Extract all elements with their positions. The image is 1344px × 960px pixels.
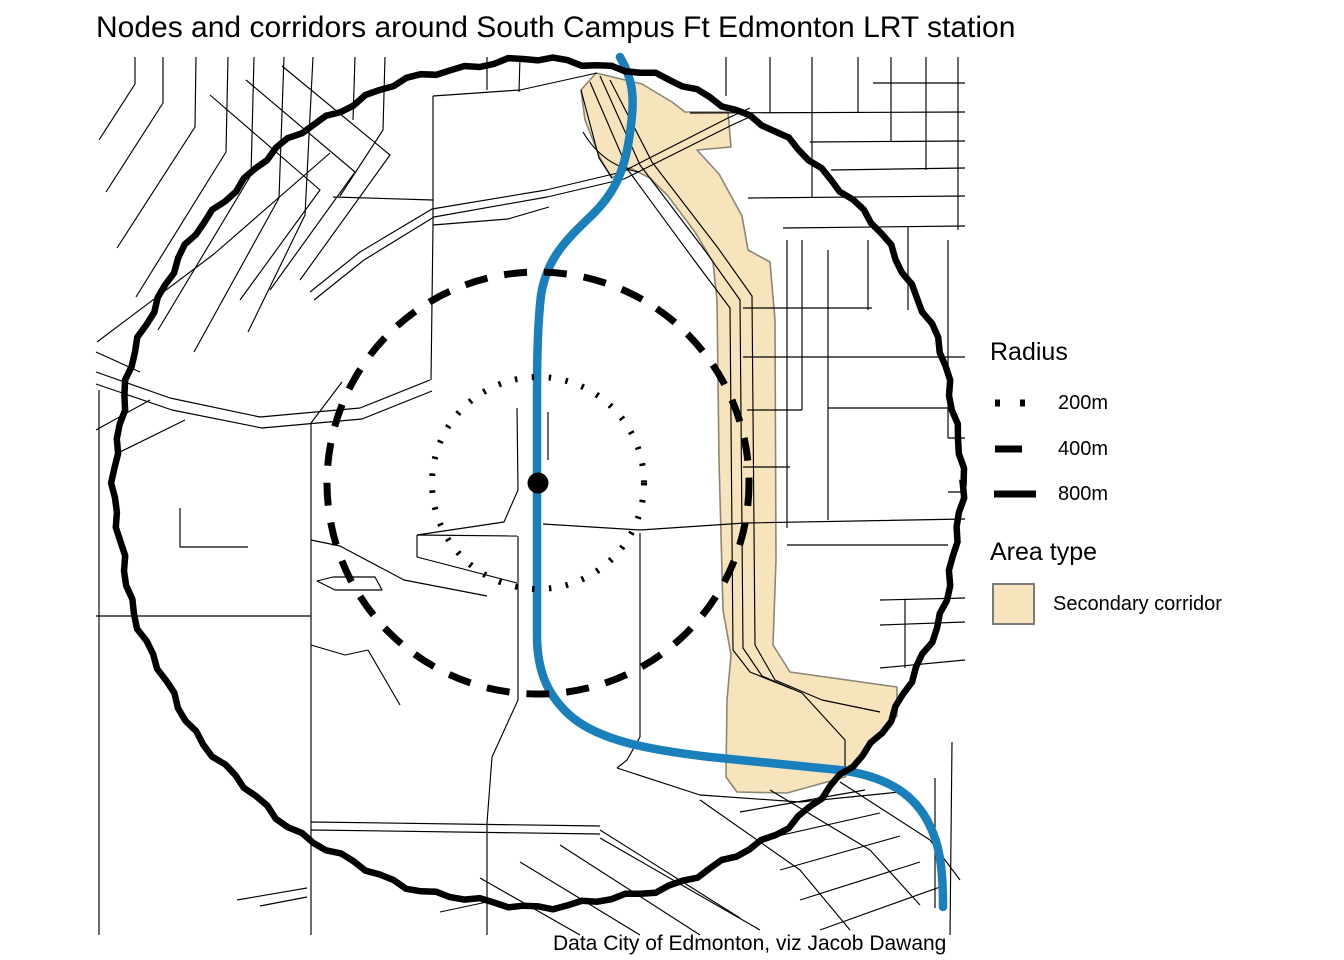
street-segment [440, 902, 487, 912]
legend-item-label: 400m [1058, 438, 1108, 461]
figure: Nodes and corridors around South Campus … [0, 0, 1344, 960]
legend-item-400m: 400m [992, 436, 1108, 462]
street-segment [340, 57, 385, 196]
legend-item-label: Secondary corridor [1053, 593, 1222, 616]
street-segment [248, 57, 313, 332]
street-segment [748, 196, 965, 198]
street-segment [880, 622, 965, 625]
legend-item-label: 200m [1058, 392, 1108, 415]
street-segment [417, 408, 518, 535]
street-segment [600, 830, 740, 918]
street-segment [260, 897, 307, 906]
street-segment [417, 535, 517, 583]
street-segment [831, 168, 965, 170]
street-segment [180, 508, 248, 547]
data-credit-caption: Data City of Edmonton, viz Jacob Dawang [553, 932, 946, 956]
street-segment [120, 420, 185, 452]
legend-item-200m: 200m [992, 390, 1108, 416]
legend-item-secondary-corridor: Secondary corridor [992, 582, 1222, 626]
dashed-line-icon [992, 443, 1040, 455]
street-segment [433, 207, 549, 225]
street-segment [96, 372, 430, 417]
legend-area-type-title: Area type [990, 538, 1097, 567]
corridor-swatch-icon [992, 583, 1035, 625]
street-segment [333, 197, 433, 200]
street-segment [96, 384, 432, 428]
street-segment [770, 790, 920, 905]
lrt-station-dot [528, 473, 549, 494]
legend-item-800m: 800m [992, 481, 1108, 507]
street-segment [99, 57, 135, 140]
street-segment [136, 57, 228, 297]
street-segment [311, 830, 600, 834]
street-segment [97, 153, 330, 342]
street-segment [880, 660, 965, 668]
street-segment [820, 887, 940, 930]
solid-line-icon [992, 488, 1040, 500]
street-segment [800, 862, 920, 900]
street-segment [417, 535, 517, 536]
street-segment [311, 822, 600, 826]
legend-radius-title: Radius [990, 338, 1068, 367]
street-segment [950, 742, 952, 935]
street-segment [311, 645, 368, 655]
secondary-corridor-area [581, 73, 897, 793]
street-segment [353, 57, 355, 120]
legend-item-label: 800m [1058, 483, 1108, 506]
street-segment [282, 66, 390, 280]
street-segment [519, 57, 520, 92]
street-segment [560, 845, 700, 935]
street-segment [780, 836, 900, 870]
street-segment [810, 141, 965, 142]
dotted-line-icon [992, 397, 1040, 409]
street-segment [700, 800, 850, 930]
street-segment [617, 533, 640, 768]
street-segment [237, 888, 307, 900]
street-segment [158, 57, 254, 330]
street-segment [433, 73, 597, 96]
map-canvas [0, 0, 1344, 960]
street-segment [368, 650, 400, 705]
street-segment [880, 598, 965, 600]
street-segment [690, 112, 965, 113]
street-segment [487, 536, 518, 935]
